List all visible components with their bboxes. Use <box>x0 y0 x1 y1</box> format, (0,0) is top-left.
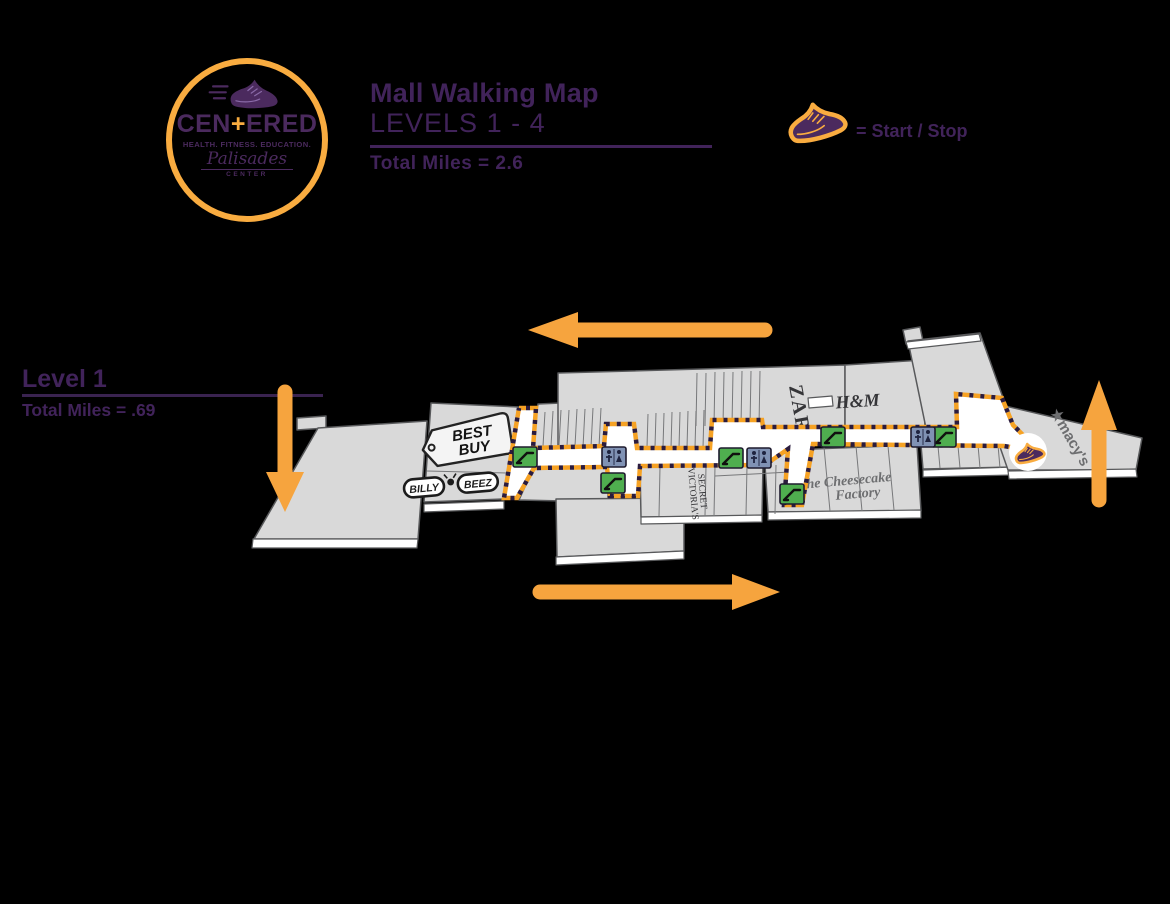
route-arrow-right-icon <box>540 574 780 610</box>
escalator-icon <box>719 448 743 468</box>
escalator-icon <box>780 484 804 504</box>
start-stop-marker <box>1009 433 1047 471</box>
route-arrow-left-icon <box>528 312 765 348</box>
skylight-notch <box>808 396 833 408</box>
escalator-icon <box>513 447 537 467</box>
restroom-icon <box>747 448 771 468</box>
building-base-edge <box>768 510 921 520</box>
restroom-icon <box>602 447 626 467</box>
building-base-edge <box>424 501 504 512</box>
building-base-edge <box>252 539 418 548</box>
svg-text:BEEZ: BEEZ <box>463 477 493 491</box>
escalator-icon <box>821 427 845 447</box>
restroom-icon <box>911 427 935 447</box>
store-label-hm: H&M <box>834 389 881 412</box>
building-base-edge <box>641 515 762 524</box>
escalator-icon <box>601 473 625 493</box>
mall-floor-map: BEST BUY BILLY BEEZ ZARA H&M VICTORIA'S … <box>0 0 1170 904</box>
